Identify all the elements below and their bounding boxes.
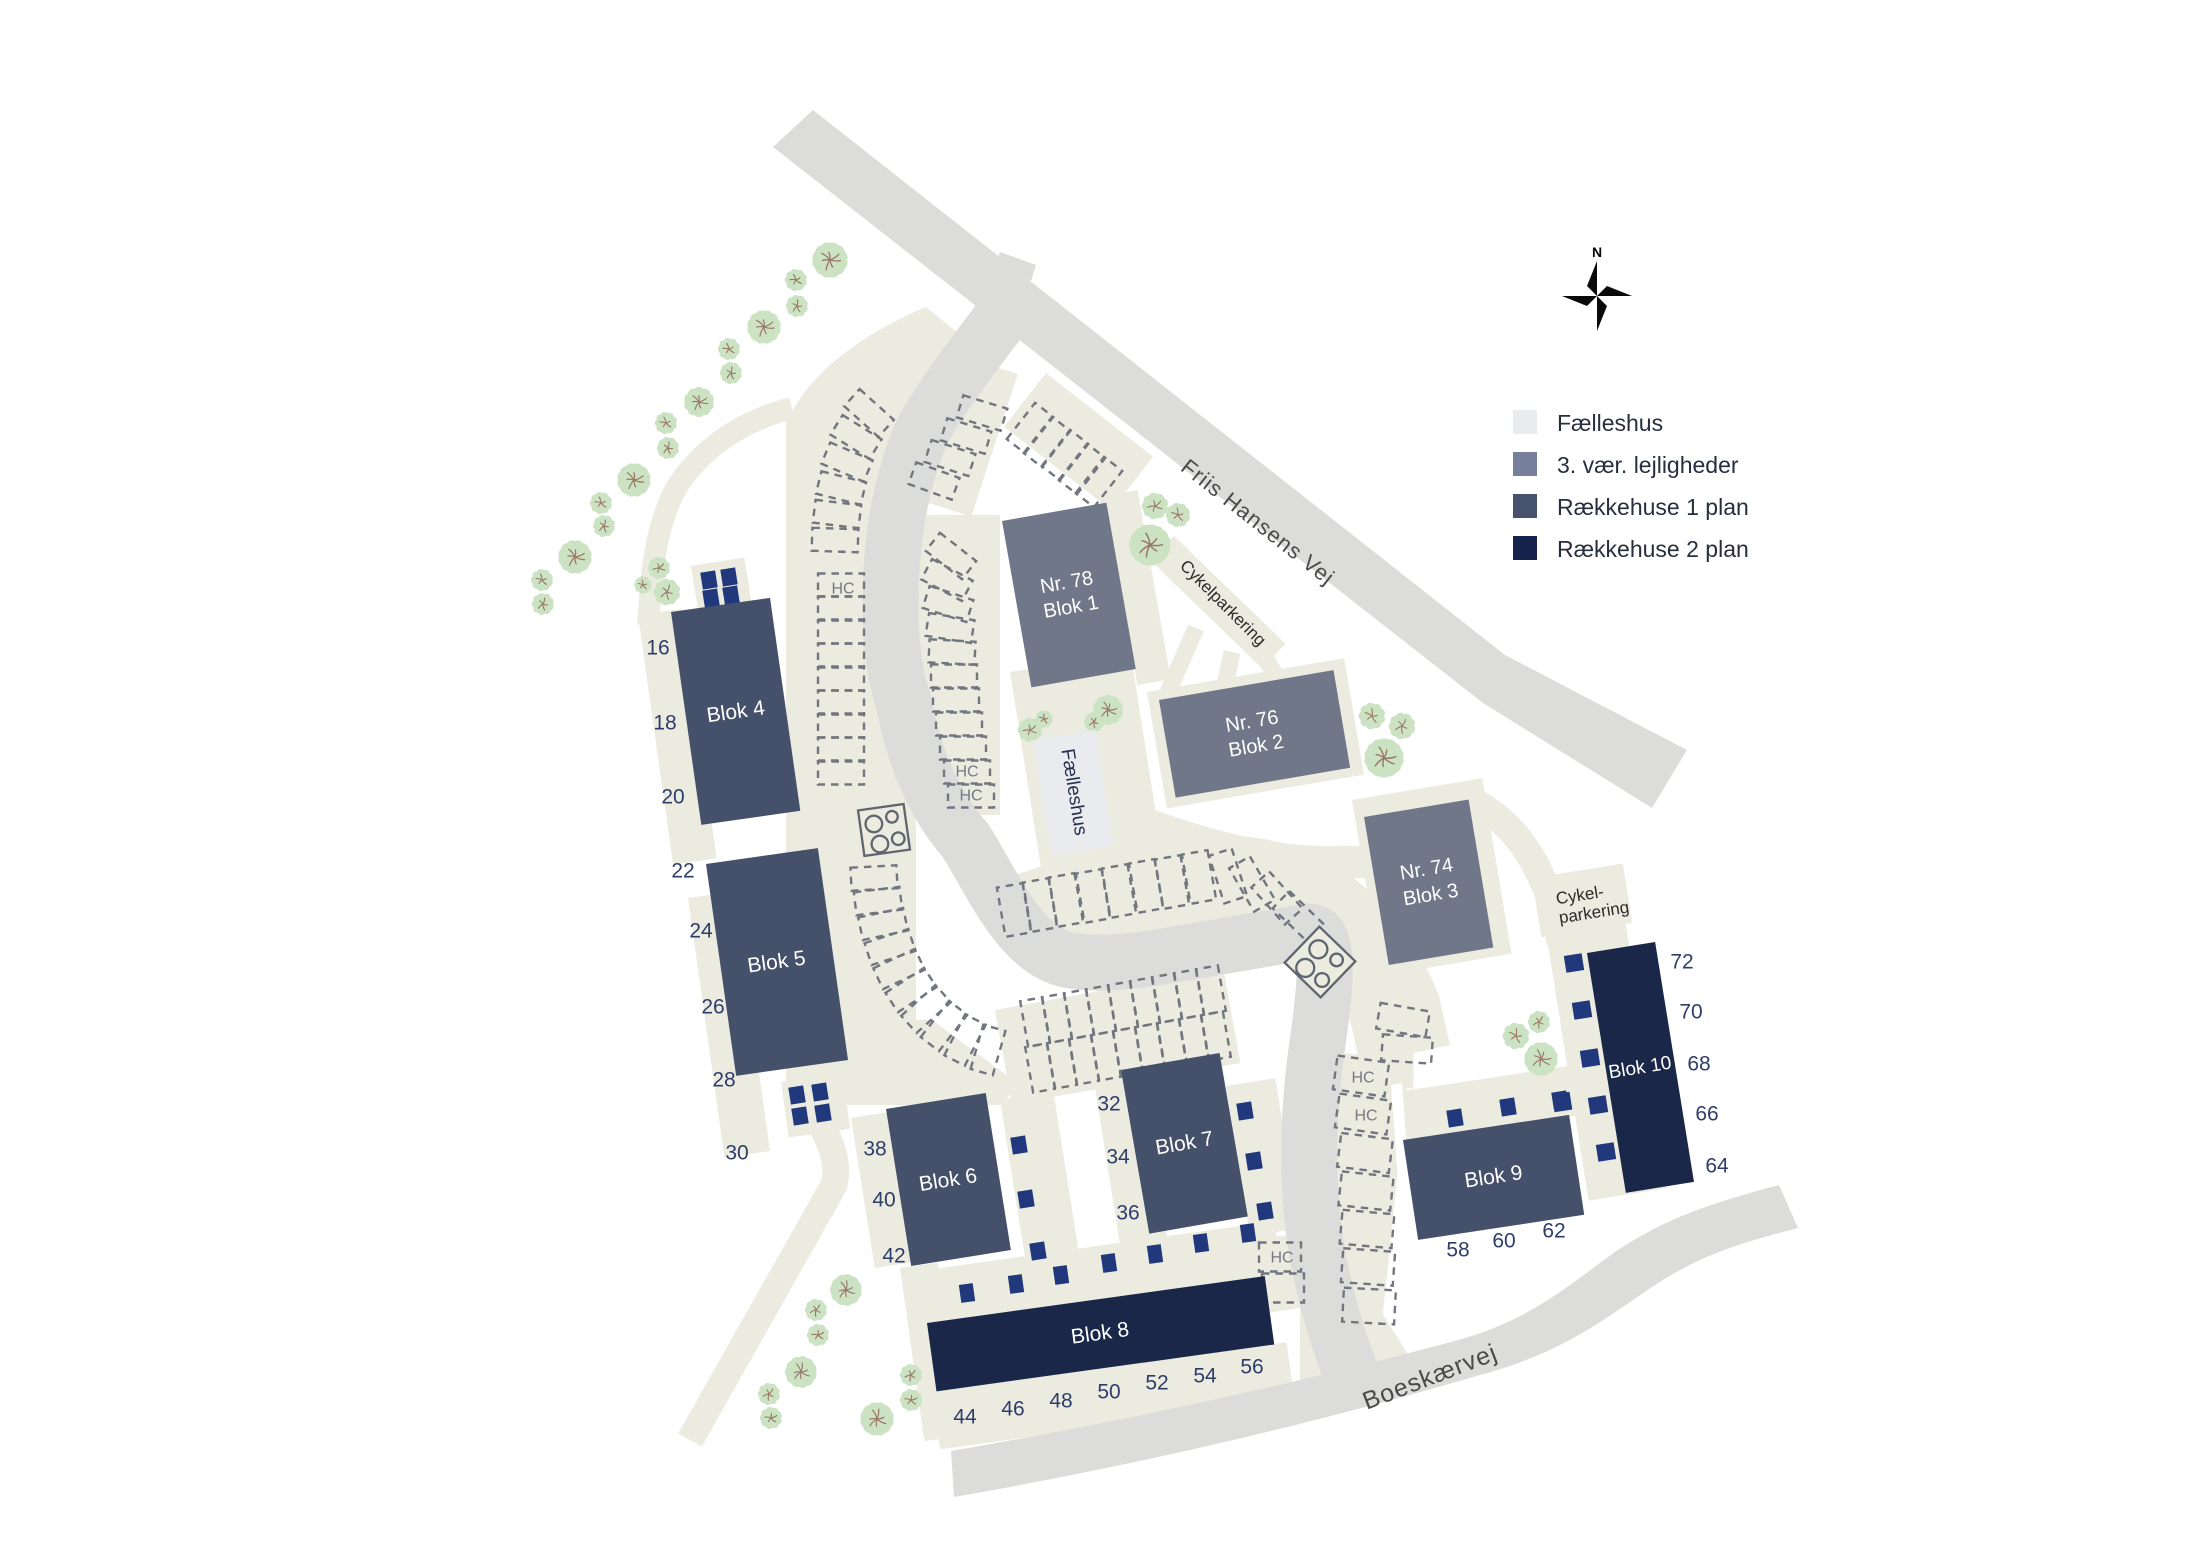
svg-text:46: 46 [1001, 1398, 1024, 1421]
svg-text:32: 32 [1097, 1093, 1120, 1116]
svg-text:70: 70 [1679, 1001, 1702, 1024]
svg-text:HC: HC [1354, 1108, 1377, 1125]
svg-text:42: 42 [882, 1245, 905, 1268]
svg-text:40: 40 [872, 1189, 895, 1212]
svg-text:66: 66 [1695, 1103, 1718, 1126]
svg-text:28: 28 [712, 1069, 735, 1092]
svg-text:HC: HC [955, 764, 978, 781]
svg-text:26: 26 [701, 996, 724, 1019]
svg-text:72: 72 [1670, 951, 1693, 974]
svg-text:N: N [1592, 244, 1602, 260]
svg-text:3. vær. lejligheder: 3. vær. lejligheder [1557, 452, 1739, 478]
svg-text:52: 52 [1145, 1372, 1168, 1395]
svg-text:58: 58 [1446, 1239, 1469, 1262]
svg-text:HC: HC [1351, 1070, 1374, 1087]
svg-text:Rækkehuse 2 plan: Rækkehuse 2 plan [1557, 536, 1749, 562]
svg-text:44: 44 [953, 1406, 977, 1429]
svg-text:68: 68 [1687, 1053, 1710, 1076]
svg-text:Fælleshus: Fælleshus [1557, 410, 1663, 436]
svg-text:16: 16 [646, 637, 669, 660]
svg-text:HC: HC [831, 581, 854, 598]
svg-text:18: 18 [653, 712, 676, 735]
svg-text:50: 50 [1097, 1381, 1120, 1404]
svg-text:38: 38 [863, 1138, 886, 1161]
svg-text:20: 20 [661, 786, 684, 809]
svg-text:36: 36 [1116, 1202, 1139, 1225]
svg-text:48: 48 [1049, 1390, 1072, 1413]
svg-text:56: 56 [1240, 1356, 1263, 1379]
svg-text:54: 54 [1193, 1365, 1217, 1388]
svg-text:62: 62 [1542, 1220, 1565, 1243]
svg-text:HC: HC [959, 788, 982, 805]
svg-text:HC: HC [1270, 1250, 1293, 1267]
svg-text:64: 64 [1705, 1155, 1729, 1178]
svg-text:30: 30 [725, 1142, 748, 1165]
svg-text:24: 24 [689, 920, 713, 943]
svg-text:22: 22 [671, 860, 694, 883]
svg-text:Rækkehuse 1 plan: Rækkehuse 1 plan [1557, 494, 1749, 520]
svg-text:34: 34 [1106, 1146, 1130, 1169]
svg-text:60: 60 [1492, 1230, 1515, 1253]
